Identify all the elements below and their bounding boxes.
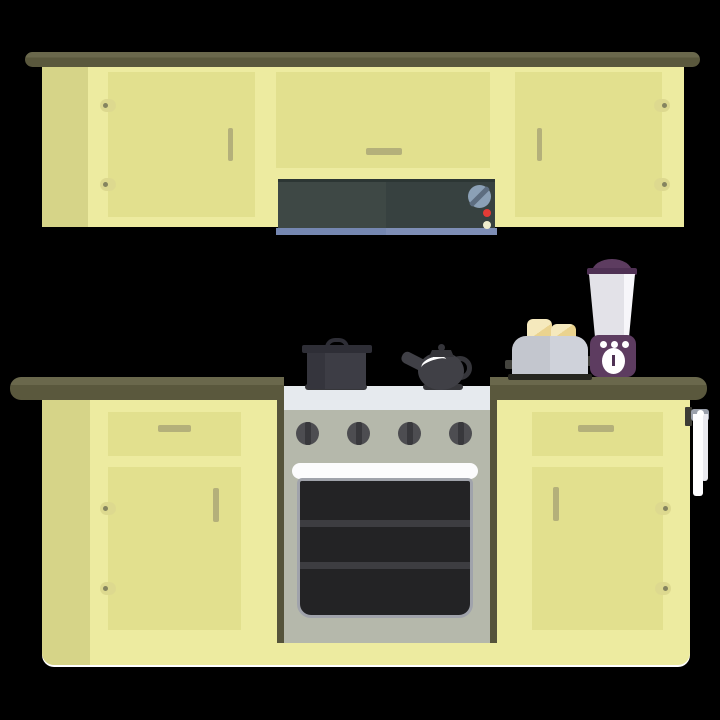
door-hinge <box>100 178 116 191</box>
blender-lid-rim <box>587 268 637 275</box>
hood-control-knob <box>468 185 491 208</box>
door-hinge <box>100 99 116 112</box>
stove-knob <box>398 422 421 445</box>
toaster <box>512 336 588 377</box>
countertop-left <box>10 377 284 400</box>
drawer-left <box>108 412 241 456</box>
cabinet-edge-left-of-stove <box>277 400 284 643</box>
knob-stripe <box>469 186 490 207</box>
door-hinge <box>654 178 670 191</box>
blender-button <box>600 341 607 348</box>
hood-vent-strip <box>276 228 497 235</box>
stove-knob <box>347 422 370 445</box>
door-handle <box>537 128 542 161</box>
lower-cabinet-side-panel <box>42 400 90 665</box>
top-shelf-board <box>25 52 700 67</box>
door-handle <box>228 128 233 161</box>
cabinet-door-lower-left <box>108 467 241 630</box>
range-hood <box>278 179 495 228</box>
toaster-base <box>508 374 592 380</box>
cooking-pot <box>307 353 366 389</box>
blender-button <box>622 341 629 348</box>
hood-light-red <box>483 209 491 217</box>
oven-rack <box>300 520 470 527</box>
hood-light-yellow <box>483 221 491 229</box>
blender-power-button <box>602 348 625 374</box>
rail-end-cap <box>697 410 704 417</box>
door-handle <box>213 488 219 522</box>
stove-knob <box>449 422 472 445</box>
blender-button <box>611 341 618 348</box>
cabinet-edge-right-of-stove <box>490 400 497 643</box>
door-hinge <box>655 502 671 515</box>
kitchen-scene <box>0 0 720 720</box>
door-hinge <box>654 99 670 112</box>
kettle-lid <box>429 350 454 357</box>
upper-cabinet-side-panel <box>42 67 88 227</box>
stove-knob <box>296 422 319 445</box>
door-hinge <box>100 502 116 515</box>
door-handle <box>553 487 559 521</box>
pot-lid <box>302 345 372 353</box>
door-handle <box>366 148 402 155</box>
blender-jar <box>589 274 635 337</box>
power-button-bar <box>612 355 615 366</box>
door-hinge <box>100 582 116 595</box>
cabinet-door-lower-right <box>532 467 663 630</box>
countertop-right <box>490 377 707 400</box>
door-hinge <box>655 582 671 595</box>
drawer-handle <box>578 425 614 432</box>
oven-door-window <box>297 478 473 618</box>
hand-towel <box>693 414 703 496</box>
drawer-handle <box>158 425 191 432</box>
oven-handle <box>292 463 478 479</box>
oven-rack <box>300 562 470 569</box>
drawer-right <box>532 412 663 456</box>
kettle-knob <box>438 344 445 351</box>
